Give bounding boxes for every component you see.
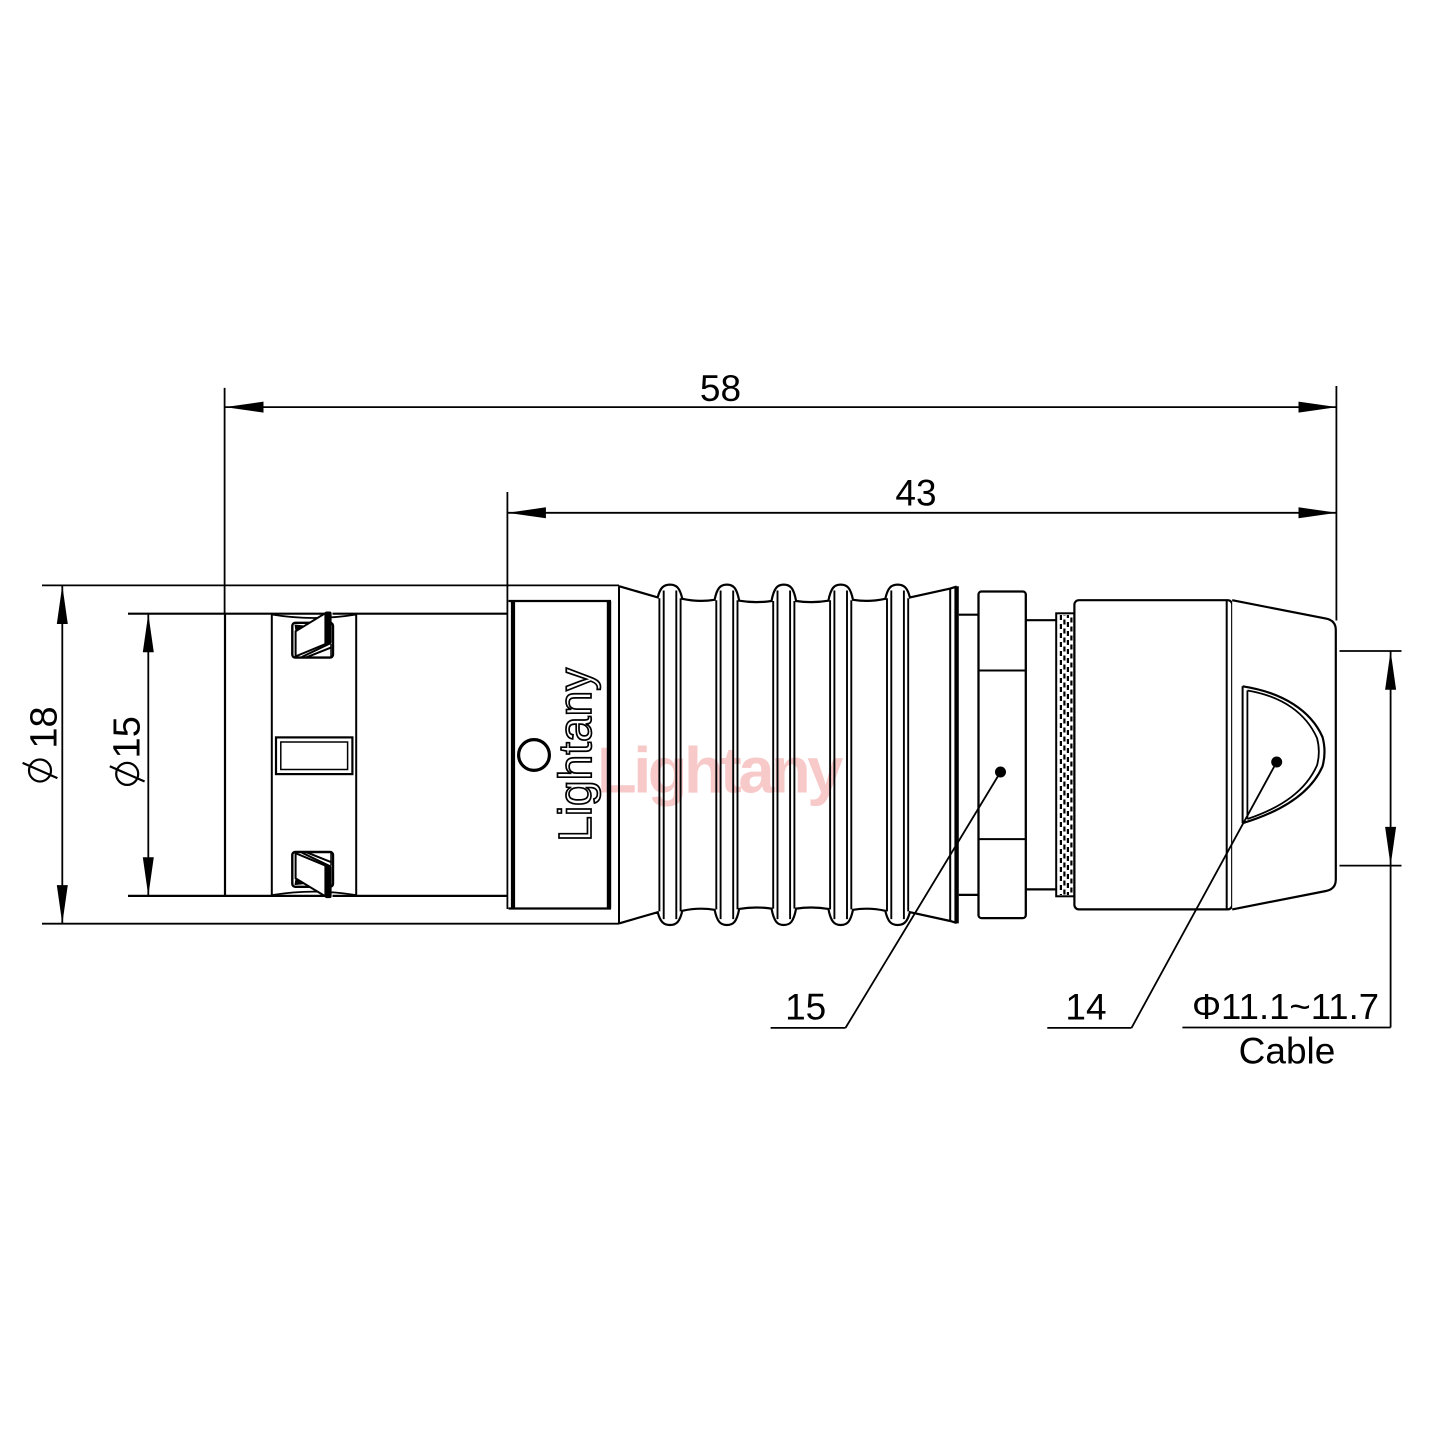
svg-text:18: 18 <box>24 706 66 748</box>
svg-text:58: 58 <box>700 368 741 409</box>
svg-text:Φ11.1~11.7: Φ11.1~11.7 <box>1192 986 1379 1027</box>
svg-text:15: 15 <box>785 987 826 1028</box>
svg-text:Cable: Cable <box>1239 1031 1336 1072</box>
svg-text:43: 43 <box>895 473 936 514</box>
svg-text:15: 15 <box>107 716 149 758</box>
svg-text:14: 14 <box>1065 987 1106 1028</box>
svg-text:Lightany: Lightany <box>549 668 601 842</box>
